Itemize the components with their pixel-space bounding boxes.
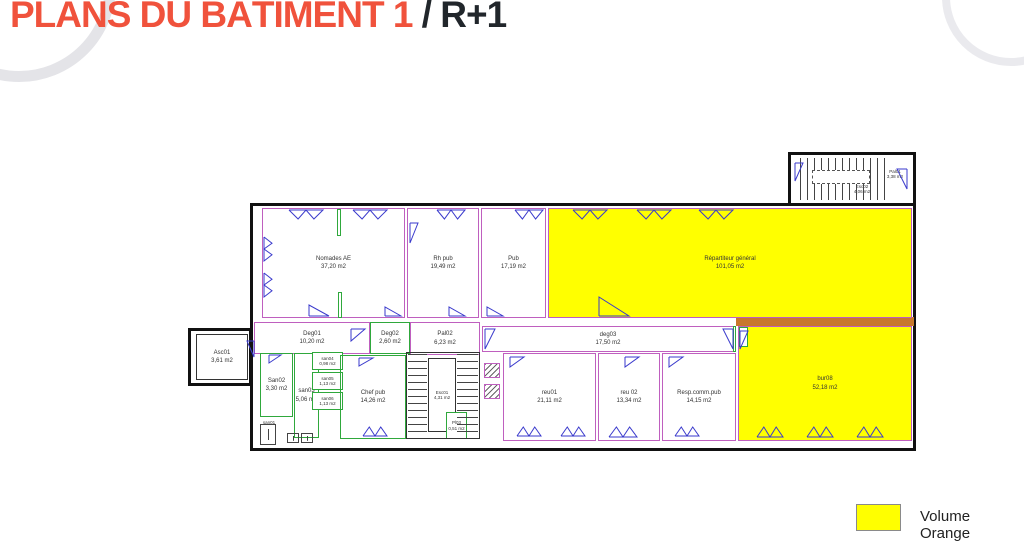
sanitary-fixture (287, 433, 299, 443)
room-label: Deg01 (303, 330, 321, 338)
door-swing-icon (263, 272, 273, 298)
room-label: Rh pub (433, 255, 452, 263)
green-wall-segment (337, 209, 341, 236)
room-label: Nomades AE (316, 255, 351, 263)
room-label: Chef pub (361, 389, 385, 397)
legend-volume-orange-swatch (856, 504, 901, 531)
room-area: 14,15 m2 (686, 397, 711, 405)
room-label: bur08 (817, 375, 832, 383)
legend: Volume Orange (846, 498, 1024, 538)
door-swing-icon (350, 328, 366, 342)
door-swing-icon (436, 209, 466, 220)
room-san05: san051,13 m2 (312, 372, 343, 390)
door-swing-icon (514, 209, 544, 220)
door-swing-icon (608, 426, 638, 438)
room-label: Asc01 (214, 349, 231, 357)
door-swing-icon (509, 356, 525, 368)
door-swing-icon (358, 357, 374, 367)
door-swing-icon (448, 306, 466, 317)
door-swing-icon (246, 340, 255, 358)
door-swing-icon (516, 426, 542, 437)
door-swing-icon (739, 330, 749, 350)
room-label: Pal02 (437, 330, 452, 338)
door-swing-icon (794, 162, 804, 182)
room-area: 19,49 m2 (430, 263, 455, 271)
orange-corridor-band (736, 317, 914, 326)
door-swing-icon (896, 168, 908, 190)
room-label: reu01 (542, 389, 557, 397)
room-label: deg03 (600, 331, 617, 339)
stairs-treads-h (457, 354, 478, 437)
door-swing-icon (268, 354, 282, 364)
room-area: 17,19 m2 (501, 263, 526, 271)
room-label: Répartiteur général (704, 255, 755, 263)
room-pub: Pub17,19 m2 (481, 208, 546, 318)
room-deg02: Deg022,60 m2 (370, 322, 410, 354)
room-san04: san040,98 m2 (312, 352, 343, 370)
duct-shaft (484, 363, 500, 378)
door-swing-icon (288, 209, 324, 220)
room-label: Pub (508, 255, 519, 263)
room-area: 13,34 m2 (616, 397, 641, 405)
room-area: 1,13 m2 (319, 381, 335, 386)
floor-plan: Nomades AE37,20 m2Rh pub19,49 m2Pub17,19… (0, 0, 1024, 541)
door-swing-icon (722, 328, 734, 350)
room-label: Resp.comm.pub (677, 389, 721, 397)
room-area: 6,23 m2 (434, 339, 456, 347)
room-bur08: bur0852,18 m2 (738, 326, 912, 441)
room-deg03: deg0317,50 m2 (482, 326, 734, 352)
room-san06: san061,13 m2 (312, 392, 343, 410)
room-area: 0,98 m2 (319, 361, 335, 366)
room-area: 3,30 m2 (266, 385, 288, 393)
door-swing-icon (486, 306, 504, 317)
door-swing-icon (384, 306, 402, 317)
duct-shaft (484, 384, 500, 399)
room-area: 3,61 m2 (211, 357, 233, 365)
door-swing-icon (560, 426, 586, 437)
room-area: 2,60 m2 (379, 338, 401, 346)
door-swing-icon (806, 426, 834, 438)
room-label: Deg02 (381, 330, 399, 338)
door-swing-icon (668, 356, 684, 368)
room-area: 37,20 m2 (321, 263, 346, 271)
room-label: reu 02 (620, 389, 637, 397)
legend-label: Volume Orange (920, 508, 1024, 542)
door-swing-icon (362, 426, 388, 437)
door-swing-icon (263, 236, 273, 262)
room-area: 21,11 m2 (537, 397, 562, 405)
room-area: 52,18 m2 (812, 384, 837, 392)
door-swing-icon (856, 426, 884, 438)
room-label: San02 (268, 377, 285, 385)
sanitary-fixture (260, 424, 276, 445)
green-wall-segment (338, 292, 342, 318)
door-swing-icon (756, 426, 784, 438)
door-swing-icon (598, 296, 630, 317)
room-area: 1,13 m2 (319, 401, 335, 406)
room-area: 14,26 m2 (360, 397, 385, 405)
door-swing-icon (484, 328, 496, 350)
room-area: 17,50 m2 (595, 339, 620, 347)
room-asc01: Asc013,61 m2 (196, 334, 248, 380)
door-swing-icon (698, 209, 734, 220)
door-swing-icon (636, 209, 672, 220)
room-area: 10,20 m2 (299, 338, 324, 346)
door-swing-icon (624, 356, 640, 368)
room-pal02: Pal026,23 m2 (410, 322, 480, 355)
stairs-treads-h (408, 354, 427, 437)
stairs-dashedbox (812, 170, 870, 184)
sanitary-fixture (301, 433, 313, 443)
door-swing-icon (674, 426, 700, 437)
door-swing-icon (409, 222, 419, 244)
door-swing-icon (352, 209, 388, 220)
room-area: 101,05 m2 (716, 263, 744, 271)
room-nomades-ae: Nomades AE37,20 m2 (262, 208, 405, 318)
door-swing-icon (572, 209, 608, 220)
door-swing-icon (308, 304, 330, 317)
